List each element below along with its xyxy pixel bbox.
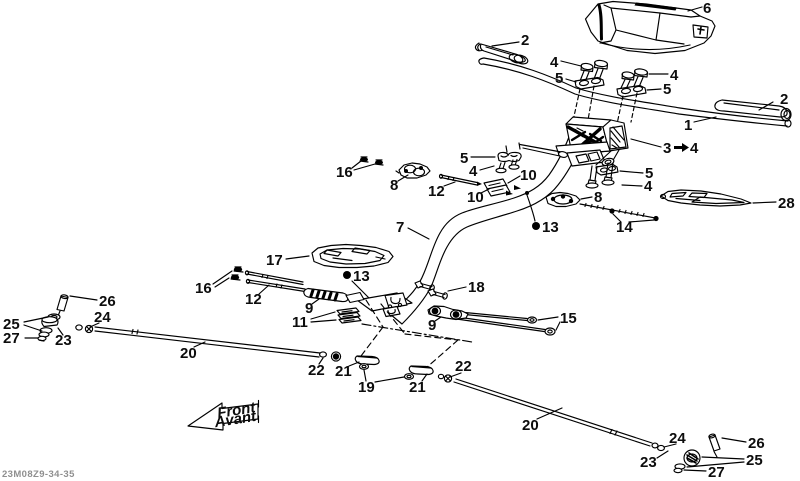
svg-text:26: 26 (99, 293, 116, 310)
svg-text:24: 24 (669, 430, 686, 447)
svg-text:12: 12 (428, 183, 445, 200)
svg-text:6: 6 (703, 0, 711, 17)
svg-text:10: 10 (467, 189, 484, 206)
svg-text:5: 5 (663, 81, 671, 98)
svg-text:23M08Z9-34-35: 23M08Z9-34-35 (2, 469, 75, 480)
svg-text:7: 7 (396, 219, 404, 236)
svg-text:13: 13 (353, 268, 370, 285)
svg-text:13: 13 (542, 219, 559, 236)
svg-text:8: 8 (390, 177, 398, 194)
svg-text:22: 22 (455, 358, 472, 375)
svg-text:26: 26 (748, 435, 765, 452)
svg-text:15: 15 (560, 310, 577, 327)
svg-text:4: 4 (690, 140, 699, 157)
svg-text:19: 19 (358, 379, 375, 396)
svg-text:28: 28 (778, 195, 795, 212)
svg-text:20: 20 (522, 417, 539, 434)
svg-text:4: 4 (550, 54, 559, 71)
svg-text:25: 25 (746, 452, 763, 469)
svg-text:5: 5 (460, 150, 468, 167)
svg-text:5: 5 (555, 70, 563, 87)
svg-text:3: 3 (663, 140, 671, 157)
svg-text:1: 1 (684, 117, 692, 134)
svg-text:23: 23 (640, 454, 657, 471)
svg-text:11: 11 (292, 314, 308, 331)
svg-text:16: 16 (336, 164, 353, 181)
svg-text:10: 10 (520, 167, 537, 184)
svg-text:18: 18 (468, 279, 485, 296)
svg-text:27: 27 (3, 330, 20, 347)
svg-text:4: 4 (644, 178, 653, 195)
svg-text:21: 21 (409, 379, 426, 396)
svg-text:16: 16 (195, 280, 212, 297)
svg-text:27: 27 (708, 464, 725, 481)
svg-text:4: 4 (469, 163, 478, 180)
svg-text:4: 4 (670, 67, 679, 84)
svg-text:22: 22 (308, 362, 325, 379)
svg-text:8: 8 (594, 189, 602, 206)
svg-text:2: 2 (521, 32, 529, 49)
svg-text:17: 17 (266, 252, 283, 269)
svg-text:9: 9 (428, 317, 436, 334)
svg-text:20: 20 (180, 345, 197, 362)
svg-text:2: 2 (780, 91, 788, 108)
